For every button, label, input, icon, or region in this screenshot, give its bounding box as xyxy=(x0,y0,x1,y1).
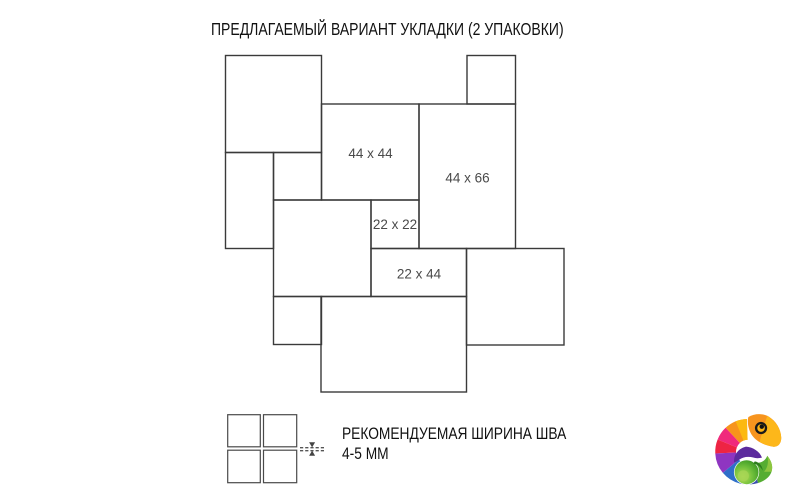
svg-text:44 x 66: 44 x 66 xyxy=(445,171,489,186)
svg-text:44 x 44: 44 x 44 xyxy=(348,146,393,161)
svg-text:22 x 22: 22 x 22 xyxy=(373,217,417,232)
svg-text:22 x 44: 22 x 44 xyxy=(397,267,442,282)
